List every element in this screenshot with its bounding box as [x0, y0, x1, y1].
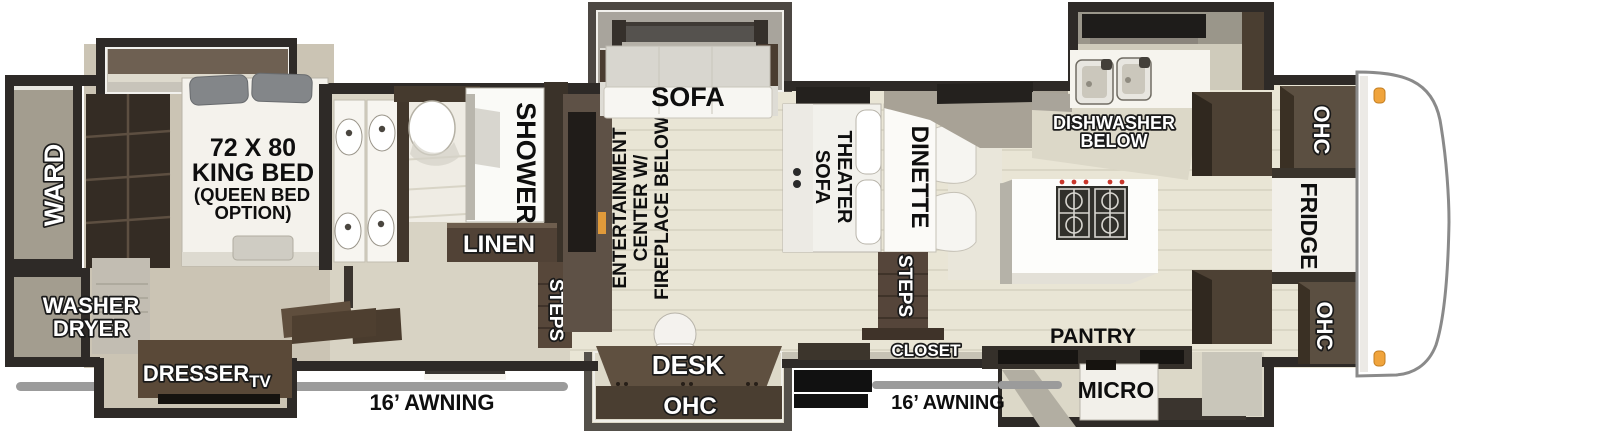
svg-text:16’ AWNING: 16’ AWNING: [891, 392, 1005, 414]
svg-text:OHC: OHC: [1312, 302, 1337, 351]
svg-text:DESK: DESK: [652, 350, 724, 380]
svg-text:WASHER: WASHER: [43, 293, 140, 318]
svg-text:STEPS: STEPS: [894, 255, 915, 317]
svg-text:LINEN: LINEN: [463, 231, 535, 258]
svg-text:DRESSER: DRESSER: [143, 361, 249, 386]
svg-text:DISHWASHER: DISHWASHER: [1053, 113, 1175, 133]
svg-text:OHC: OHC: [1309, 106, 1334, 155]
svg-text:SOFA: SOFA: [811, 150, 833, 204]
svg-text:TV: TV: [249, 372, 271, 391]
svg-text:ENTERTAINMENT: ENTERTAINMENT: [610, 127, 631, 289]
svg-text:PANTRY: PANTRY: [1050, 324, 1136, 348]
svg-text:KING BED: KING BED: [192, 159, 314, 187]
svg-text:OPTION): OPTION): [214, 202, 291, 223]
svg-text:SHOWER: SHOWER: [511, 102, 541, 224]
svg-text:SOFA: SOFA: [651, 82, 725, 112]
svg-text:DRYER: DRYER: [53, 316, 129, 341]
svg-text:16’ AWNING: 16’ AWNING: [369, 390, 494, 415]
svg-text:CENTER W/: CENTER W/: [631, 154, 652, 261]
svg-text:DINETTE: DINETTE: [906, 126, 933, 229]
svg-text:72 X 80: 72 X 80: [210, 134, 296, 162]
svg-text:BELOW: BELOW: [1081, 131, 1148, 151]
svg-text:CLOSET: CLOSET: [892, 341, 962, 360]
svg-text:STEPS: STEPS: [545, 279, 566, 341]
svg-text:THEATER: THEATER: [833, 131, 855, 225]
svg-text:FRIDGE: FRIDGE: [1296, 183, 1322, 270]
svg-text:FIREPLACE BELOW: FIREPLACE BELOW: [652, 116, 673, 300]
svg-text:OHC: OHC: [663, 393, 716, 420]
svg-text:WARD: WARD: [39, 144, 69, 227]
svg-text:MICRO: MICRO: [1078, 377, 1155, 403]
